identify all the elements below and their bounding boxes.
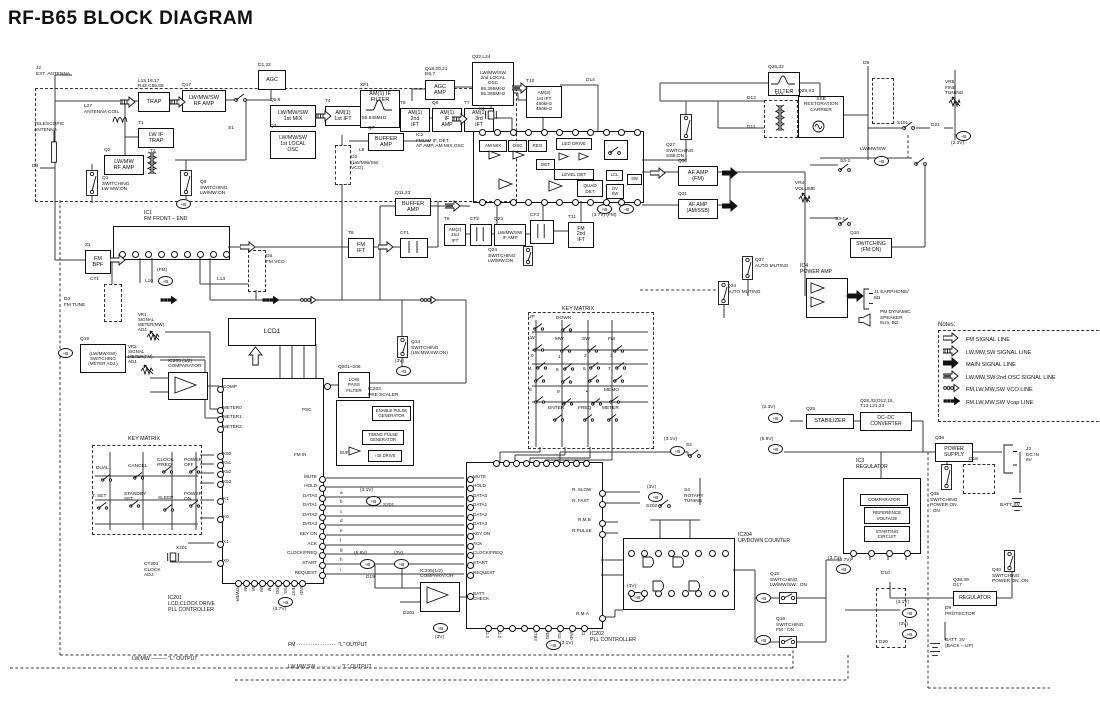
ic4-amp2-icon xyxy=(810,296,826,308)
key-9: 9 xyxy=(557,390,560,395)
ic1-pins-8 xyxy=(223,251,230,258)
key-2: 2 xyxy=(584,354,587,359)
buf-opamp-icon xyxy=(348,446,362,456)
agc-caption: D1,22 xyxy=(258,63,271,68)
ic201-pins-bottom-5 xyxy=(275,580,282,587)
ic202-pin-stby: STBY xyxy=(533,630,538,641)
r-pulse: R.PULSE xyxy=(572,528,592,533)
pin-data3-201 xyxy=(319,523,326,530)
q24-switching: Q24 SWITCHING LW/MW:ON xyxy=(488,248,515,265)
telescopic-antenna-icon xyxy=(48,130,60,164)
d11: D11 xyxy=(747,125,755,131)
key-4: 4 xyxy=(529,367,532,372)
wire-e: e xyxy=(340,528,343,533)
wire-h: h xyxy=(340,557,343,562)
lcd-up-arrow-icon xyxy=(248,346,263,366)
bub-comp2: +B xyxy=(433,623,448,633)
bub-q19: +B xyxy=(58,348,73,358)
key-memo-switch-icon xyxy=(609,395,620,404)
vr4-pot-icon xyxy=(798,192,813,203)
ic4-amp1-icon xyxy=(810,282,826,294)
gate2-icon xyxy=(672,556,688,568)
q7-buffer: BUFFER AMP xyxy=(368,133,404,151)
cf3-element-icon xyxy=(533,223,549,239)
ic203-label: IC203 PRE SCALER xyxy=(368,387,398,398)
starting-circuit: STARTING CIRCUIT xyxy=(864,526,910,542)
ic4-label: IC4 POWER AMP xyxy=(800,264,832,276)
batt-3v: BATT. 3V (BACK – UP) xyxy=(945,638,973,649)
t6-caption: T6 xyxy=(348,231,354,236)
j3-jack-icon xyxy=(1002,444,1018,474)
ic202-pins-bottom-4 xyxy=(533,625,540,632)
gate4-icon xyxy=(688,580,704,592)
ic2-pins-bottom-9 xyxy=(618,199,625,206)
vr5-pot-icon xyxy=(948,96,963,107)
pin-rfast xyxy=(599,501,606,508)
ic201-pins-bottom-4 xyxy=(267,580,274,587)
wire-d: d xyxy=(340,518,343,523)
arrow-vco-1 xyxy=(300,294,317,306)
q27-switching: Q27 SWITCHING SSB:ON xyxy=(666,143,693,160)
legend-item-osc: LW,MW,SW:2nd OSC SIGNAL LINE xyxy=(943,372,1099,385)
bub-q25: +B xyxy=(768,413,783,423)
t8: AM(2) 2nd IFT xyxy=(444,224,466,246)
ic202-pins-bottom-0 xyxy=(485,625,492,632)
ic202-pins-bottom-3 xyxy=(521,625,528,632)
ic2-pins-top-7 xyxy=(587,129,594,136)
arrow-fm-1 xyxy=(110,254,127,266)
pin-mute-202-label: MUTE xyxy=(473,475,486,480)
ct201: CT201 CLOCK ADJ. xyxy=(144,562,161,579)
ic201-pins-bottom-8 xyxy=(299,580,306,587)
arrow-vcap-2 xyxy=(262,294,279,306)
t6: FM IFT xyxy=(348,238,374,258)
ic202-pins-bottom-5 xyxy=(545,625,552,632)
key-t-set: T. SET xyxy=(92,494,106,499)
cf2-element-icon xyxy=(472,226,488,242)
vr1-pot-icon xyxy=(146,330,162,341)
ssb-carrier-caption: Q29,X2 xyxy=(798,89,814,94)
ic2-pins-bottom-3 xyxy=(525,199,532,206)
pin-mute-201-label: MUTE xyxy=(304,475,317,480)
reference-voltage: REFERENCE VOLTAGE xyxy=(864,507,910,524)
wire-i: i xyxy=(340,567,341,572)
ic204-pins-top-5 xyxy=(695,550,702,557)
psc-pin: PSC xyxy=(302,407,311,412)
key-matrix-center-title: KEY MATRIX xyxy=(562,306,594,312)
ic201-pins-bottom-2 xyxy=(251,580,258,587)
legend-item-label: FM SIGNAL LINE xyxy=(966,337,1010,343)
pin-hold-202-label: HOLD xyxy=(473,484,486,489)
x1-crystal-icon xyxy=(484,110,498,120)
ic2-mode-lever xyxy=(608,145,621,155)
ic201-pins-bottom-6 xyxy=(283,580,290,587)
j1-earphone: J1 EARPHONE/ 8Ω xyxy=(874,290,909,301)
key-mw-switch-icon xyxy=(560,344,571,353)
key-sleep-switch-icon xyxy=(163,503,174,512)
ic204-pins-bottom-7 xyxy=(722,590,729,597)
arrow-fm-3 xyxy=(378,241,395,253)
z1-fm-bpf-caption: Z1 xyxy=(85,243,91,248)
key-1: 1 xyxy=(558,355,561,360)
d18-dash xyxy=(963,464,995,494)
xf1-bandpass-icon xyxy=(365,98,393,112)
ic1-pins-6 xyxy=(197,251,204,258)
key-sw: SW xyxy=(582,337,590,342)
ic2-pins-top-1 xyxy=(494,129,501,136)
bub-37rail: +B xyxy=(836,564,851,574)
ic2-pins-bottom-4 xyxy=(541,199,548,206)
bub-ic2-plus: +B xyxy=(597,204,612,214)
bub-59: +B xyxy=(768,444,783,454)
d5-dash xyxy=(248,250,266,292)
d14: D14 xyxy=(586,78,595,84)
ic2-pins-top-2 xyxy=(510,129,517,136)
s101-lever xyxy=(902,120,915,130)
d201: D201 xyxy=(403,611,414,617)
key-t-set-switch-icon xyxy=(97,501,108,510)
ic201-pins-bottom-3 xyxy=(259,580,266,587)
d8: D8 xyxy=(863,61,869,67)
ssb-osc-icon xyxy=(812,120,825,133)
wire-a: a xyxy=(340,490,343,495)
ic202-pins-top-6 xyxy=(553,460,560,467)
bub-q8: +B xyxy=(176,199,191,209)
t11-caption: T11 xyxy=(568,215,576,220)
key-lw: LW xyxy=(528,336,535,341)
t8-caption: T8 xyxy=(444,217,450,222)
ic202-pins-top-8 xyxy=(573,460,580,467)
s3-1-lever xyxy=(838,216,851,226)
pin-ack-202-label: ACK xyxy=(473,542,482,547)
bub-lpf: +B xyxy=(396,366,411,376)
bub-d19a: +B xyxy=(360,559,375,569)
l13: L13 xyxy=(217,277,225,283)
wire-b: b xyxy=(340,499,343,504)
bub-q16: +B xyxy=(756,635,771,645)
q15-switching: Q15 SWITCHING LW/MW/SW : ON xyxy=(770,572,807,589)
arrow-vcap-1 xyxy=(160,294,177,306)
key-power-on-switch-icon xyxy=(189,499,200,508)
ic2-pins-top-0 xyxy=(479,129,486,136)
pin-start-202-label: START xyxy=(473,561,488,566)
vr2: VR2 SIGNAL METER(FM) ADJ. xyxy=(128,344,153,364)
legend-item-fm: FM SIGNAL LINE xyxy=(943,334,1099,347)
comparator-205a-caption: IC205 (1/2) COMPARATOR xyxy=(168,359,202,370)
opamp-205b-icon xyxy=(426,586,450,604)
pin-data0-202-label: DATA0 xyxy=(473,494,487,499)
d10: D10 xyxy=(881,571,890,577)
q31-af-amp-am: AF AMP (AM/SSB) xyxy=(678,199,718,219)
pin-request-202-label: REQUEST xyxy=(473,571,495,576)
legend-item-main: MAIN SIGNAL LINE xyxy=(943,359,1099,372)
t7-caption: T7 xyxy=(464,101,470,106)
q27-switch xyxy=(680,114,692,140)
ic202-pins-top-3 xyxy=(523,460,530,467)
key-3: 3 xyxy=(610,354,613,359)
ic202-pins-bottom-1 xyxy=(497,625,504,632)
ic201-pins-bottom-0 xyxy=(235,580,242,587)
bub-l10: +B xyxy=(158,276,173,286)
ic1-pins-4 xyxy=(171,251,178,258)
ic2-pins-top-10 xyxy=(634,129,641,136)
arrow-lw-4 xyxy=(452,113,469,125)
q15-switch xyxy=(779,592,797,604)
t1-lw-trap: LW IF TRAP xyxy=(138,128,174,148)
xf1-filter-caption: XF1 xyxy=(360,83,369,88)
v3-ic204: (3V) xyxy=(627,584,636,590)
comparator-205b-caption: IC205(1/2) COMPARATOR xyxy=(420,569,454,580)
trap-caption: L15,16,17 R42,C55,58 xyxy=(138,79,164,90)
regulator-q38: REGULATOR xyxy=(953,591,997,606)
fm-in-pin: FM IN xyxy=(294,452,307,457)
pin-x1-label: X1 xyxy=(223,540,229,545)
key-clock-freq-switch-icon xyxy=(162,465,173,474)
ic204-pins-bottom-0 xyxy=(628,590,635,597)
ic2-pins-bottom-8 xyxy=(603,199,610,206)
vr4-volume: VR4 VOLUME xyxy=(795,181,815,192)
key-matrix-left-title: KEY MATRIX xyxy=(128,436,160,442)
t4-caption: T4 xyxy=(325,99,331,104)
det-internal: DET xyxy=(536,159,555,170)
cf1-caption: CF1 xyxy=(400,231,409,236)
q25-stabilizer-caption: Q25 xyxy=(806,407,815,412)
bub-ic202: +B xyxy=(546,640,561,650)
q23-if-amp-caption: Q23 xyxy=(494,217,503,222)
key-6: 6 xyxy=(583,367,586,372)
key-7: 7 xyxy=(608,367,611,372)
led-drive: LED DRIVE xyxy=(556,138,592,150)
legend-item-vco: FM,LW,MW,SW VCO LINE xyxy=(943,384,1099,397)
ic202-pins-top-9 xyxy=(583,460,590,467)
bub-s201: +B xyxy=(366,496,381,506)
ic2-pins-bottom-2 xyxy=(510,199,517,206)
legend-item-lw: LW,MW,SW SIGNAL LINE xyxy=(943,347,1099,360)
arrow-main-2 xyxy=(722,200,739,212)
key-3-switch-icon xyxy=(615,361,626,370)
page-title: RF-B65 BLOCK DIAGRAM xyxy=(8,8,253,30)
ic3-pins-1 xyxy=(868,550,875,557)
q14-switching: Q14 SWITCHING (LW,MW,SW:ON) xyxy=(411,340,448,357)
ic201-pin-test: TEST xyxy=(291,585,296,596)
agc-amp-caption: Q18,20,21 D6,7 xyxy=(425,67,447,78)
key-0-switch-icon xyxy=(536,361,547,370)
q24-switch xyxy=(523,246,533,266)
q22-2nd-local-osc: LW/MW/SW 2nd LOCAL OSC 55.395MHz 55.385M… xyxy=(472,62,514,106)
pin-keyon-202-label: KEY ON xyxy=(473,532,490,537)
q25-stabilizer: STABILIZER xyxy=(806,414,854,429)
d5-fm-vco: D5 FM VCO xyxy=(266,254,285,265)
d2-vco: D2 (LW/MW/SW VCO) xyxy=(351,155,378,172)
pin-rma xyxy=(599,615,606,622)
ic2-pins-top-3 xyxy=(525,129,532,136)
key-8: 8 xyxy=(529,388,532,393)
ic2-pins-bottom-1 xyxy=(494,199,501,206)
ic202-pins-top-5 xyxy=(543,460,550,467)
q34-switch xyxy=(718,281,729,305)
opamp-205a-icon xyxy=(174,376,198,394)
l10: L10 xyxy=(145,279,153,285)
pin-batt-check-label: BATT. CHECK xyxy=(473,592,489,602)
timing-pulse-gen: TIMING PULSE GENERATOR xyxy=(362,430,404,445)
arrow-lw-1 xyxy=(120,96,137,108)
d3-dash xyxy=(104,284,122,322)
level-det: LEVEL DET xyxy=(554,169,594,180)
pin-k0-label: K0 xyxy=(223,515,229,520)
q16-switching: Q16 SWITCHING FM : ON xyxy=(776,617,803,634)
q8-switching: Q8 SWITCHING LW/MW:ON xyxy=(200,180,227,197)
key-standby-set-switch-icon xyxy=(129,499,140,508)
t5-caption: T5 xyxy=(400,101,406,106)
arrow-lw-2 xyxy=(170,96,187,108)
q7-buffer-caption: Q7 xyxy=(368,126,374,131)
q3-local-osc-caption: Q3 xyxy=(270,124,276,129)
v31-s2: (3.1V) xyxy=(664,437,677,443)
pin-data0-201-label: DATA0 xyxy=(303,494,317,499)
q8-switch xyxy=(180,170,192,196)
q35-switch xyxy=(941,464,952,490)
d18: D18 xyxy=(969,457,978,463)
q9-if-amp-caption: Q9 xyxy=(432,101,438,106)
d3-fm-tune: D3 FM TUNE xyxy=(64,297,85,308)
pin-data1-201-label: DATA1 xyxy=(303,503,317,508)
ic202-pins-bottom-2 xyxy=(509,625,516,632)
t11: FM 2nd IFT xyxy=(568,222,594,248)
ic202-pins-top-0 xyxy=(493,460,500,467)
ic2-amp6-icon xyxy=(578,152,590,161)
ic2-amp2-icon xyxy=(512,150,526,160)
l8: L8 xyxy=(359,148,364,154)
pin-x0-label: X0 xyxy=(223,559,229,564)
q17-rf-amp: LW/MW/SW RF AMP xyxy=(182,90,226,112)
dc-dc-converter-caption: Q28,33,D12,15, T13,L21,23 xyxy=(860,399,894,410)
q36-power-supply-caption: Q36 xyxy=(935,436,944,441)
key-enter: ENTER xyxy=(548,406,564,411)
fm-l-output: FM ······················· "L" OUTPUT xyxy=(288,643,367,649)
ic201-pins-bottom-1 xyxy=(243,580,250,587)
key-freq: FREQ xyxy=(578,406,591,411)
key-meter: METER xyxy=(602,406,619,411)
pm-speaker: PM DYNAMIC SPEAKER 8cm, 8Ω xyxy=(880,310,911,327)
bub-d19b: +B xyxy=(394,559,409,569)
q2-lwmw-rf: LW/MW RF AMP xyxy=(104,155,144,175)
key-dual: DUAL xyxy=(96,466,109,471)
r-m-a: R.M.A xyxy=(576,611,589,616)
pin-data1-201 xyxy=(319,504,326,511)
pin-clockfreq-201-label: CLOCK/FREQ xyxy=(287,551,317,556)
cf1-element-icon xyxy=(403,240,423,254)
ic2-amp3-icon xyxy=(498,178,514,190)
arrow-osc-1 xyxy=(512,82,529,94)
ic2-pins-top-4 xyxy=(541,129,548,136)
regulator-q38-caption: Q38,39 D17 xyxy=(953,578,969,589)
bub-q15: +B xyxy=(756,593,771,603)
ic204-pins-bottom-6 xyxy=(709,590,716,597)
key-up: UP xyxy=(528,315,535,320)
arrow-vco-2 xyxy=(420,294,437,306)
d4: D4 xyxy=(32,164,38,170)
gate3-icon xyxy=(652,580,668,592)
j3-dc-in: J3 DC IN 6V xyxy=(1026,447,1039,464)
pin-rmb xyxy=(599,520,606,527)
key-fm: FM xyxy=(608,337,615,342)
z1-fm-bpf: FM BPF xyxy=(85,250,111,274)
ic204-pins-top-0 xyxy=(628,550,635,557)
v3-lpf: (3V) xyxy=(395,359,404,365)
ic202-pins-top-7 xyxy=(563,460,570,467)
pin-request-201 xyxy=(319,572,326,579)
ic3-pins-3 xyxy=(904,550,911,557)
d20: D20 xyxy=(879,640,888,646)
q30-af-amp-fm: AF AMP (FM) xyxy=(678,166,718,186)
key-cancel: CANCEL xyxy=(128,464,147,469)
pin-k50-label: K50 xyxy=(223,452,231,457)
key-lw-switch-icon xyxy=(533,343,544,352)
pin-hold-201 xyxy=(319,485,326,492)
t12-transformer-icon xyxy=(768,103,792,133)
x201: X201 xyxy=(176,546,187,552)
pin-rpulse xyxy=(599,531,606,538)
ic2-amp5-icon xyxy=(558,152,570,161)
pin-ack-201-label: ACK xyxy=(308,542,317,547)
q10-switching-caption: Q10 xyxy=(850,231,859,236)
ic201-pin-power: POWER xyxy=(235,585,240,602)
pin-mute-201 xyxy=(319,476,326,483)
pin-data3-202-label: DATA3 xyxy=(473,522,487,527)
ic2-label: IC2 FM/AM IF, DET, AF AMP, AM MIX,OSC xyxy=(416,133,464,150)
q5-6-mix: LW/MW/SW 1st MIX xyxy=(270,105,316,127)
v3-d19: (3V) xyxy=(394,551,403,557)
legend-vcap-line-icon xyxy=(943,394,963,412)
ic201-pins-bottom-7 xyxy=(291,580,298,587)
ic1-pins-2 xyxy=(145,251,152,258)
pin-keyon-201-label: KEY ON xyxy=(300,532,317,537)
lwmw-l-output: LW,MW ——— "L" OUTPUT xyxy=(132,657,198,663)
vr5-fine-tuning: VR5 FINE TUNING xyxy=(945,80,963,97)
pin-comp-label: COMP xyxy=(223,385,237,390)
ic2-pins-bottom-10 xyxy=(634,199,641,206)
arrow-main-1 xyxy=(722,167,739,179)
d13: D13 xyxy=(747,96,756,102)
trap: TRAP xyxy=(138,92,170,112)
ic202-pins-bottom-7 xyxy=(569,625,576,632)
q16-switch xyxy=(779,636,797,648)
sw-internal: SW xyxy=(627,174,642,185)
pin-data2-201 xyxy=(319,514,326,521)
d9-protector: D9 PROTECTOR xyxy=(945,606,975,617)
key-freq-switch-icon xyxy=(583,413,594,422)
key-1-switch-icon xyxy=(563,362,574,371)
q1-switching: Q1 SWITCHING LW MW:ON xyxy=(102,176,129,193)
lwmwsw-switch: LW/MW/SW xyxy=(860,147,886,153)
cf3-caption: CF3 xyxy=(530,213,539,218)
q36-power-supply: POWER SUPPLY xyxy=(935,443,973,462)
key-sw-switch-icon xyxy=(587,344,598,353)
v31-s201: (3.1V) xyxy=(360,488,373,494)
key-dot: • xyxy=(586,390,588,395)
v37-ic3: (3.7V) xyxy=(838,558,851,564)
d21: D21 xyxy=(931,123,940,129)
q19-switching: (LW/MW/SW) SWITCHING (METER ADJ.) xyxy=(80,344,126,373)
v3-s202: (3V) xyxy=(647,485,656,491)
q1-switch xyxy=(86,170,98,196)
pin-clockfreq-202-label: CLOCK/FREQ xyxy=(473,551,503,556)
ic202-pins-top-1 xyxy=(503,460,510,467)
q17-rf-amp-caption: Q17 xyxy=(182,83,191,88)
pin-meter0-label: METER0 xyxy=(223,406,242,411)
ic1-pins-7 xyxy=(210,251,217,258)
quad-det: QUAD DET xyxy=(577,180,603,197)
